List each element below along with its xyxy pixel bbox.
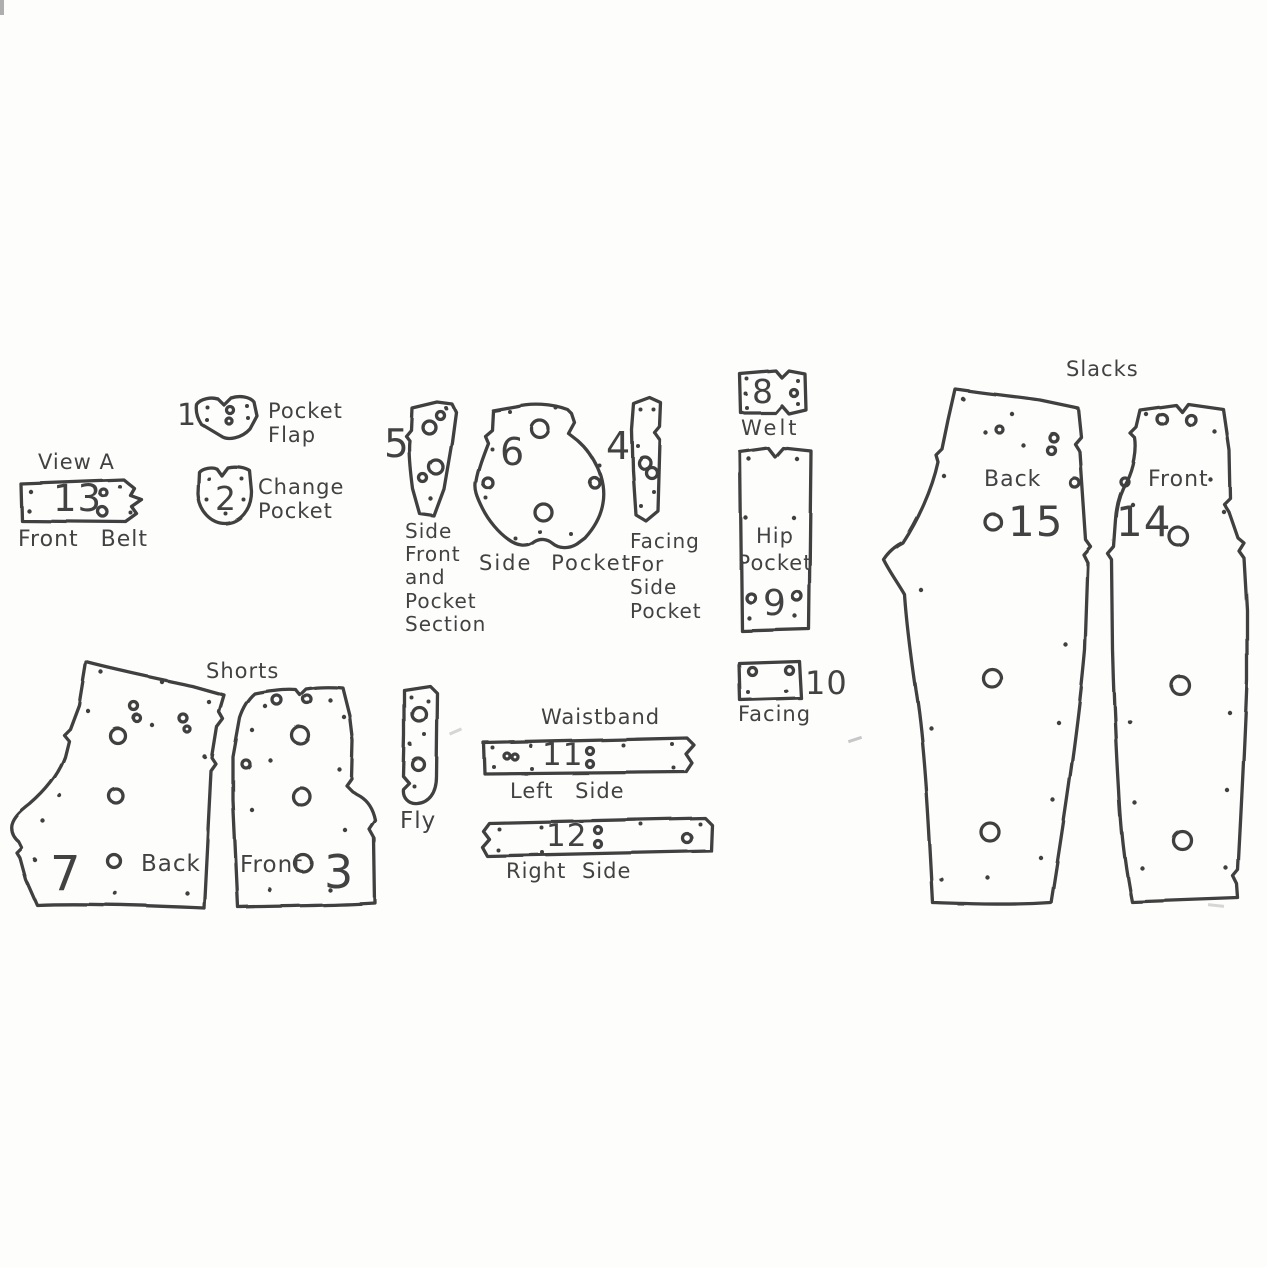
piece-number-6: 6	[500, 430, 525, 474]
view-a-label: View A	[38, 450, 115, 474]
piece-number-13: 13	[45, 477, 110, 520]
waistband-title: Waistband	[541, 705, 660, 729]
piece-number-3: 3	[324, 845, 354, 899]
welt-label: Welt	[741, 416, 800, 440]
scan-mark	[0, 0, 4, 15]
piece-side-pocket-shape	[475, 405, 603, 548]
piece-side-pocket-facing-shape	[632, 398, 661, 521]
shorts-title: Shorts	[206, 659, 279, 683]
sewing-pattern-sheet: View A 13 Front Belt 1 Pocket Flap 2 Cha…	[0, 0, 1267, 1267]
side-pocket-label: Side Pocket	[479, 551, 632, 575]
piece-fly-shape	[403, 686, 437, 803]
piece-side-front-shape	[406, 402, 456, 516]
piece-number-11: 11	[542, 737, 583, 773]
piece-number-10: 10	[805, 664, 848, 702]
shorts-front-label: Front	[240, 852, 303, 879]
piece-number-8: 8	[742, 372, 784, 411]
change-pocket-label: Change Pocket	[258, 475, 354, 524]
piece-number-5: 5	[384, 422, 410, 467]
waistband-left-label: Left Side	[510, 779, 625, 803]
piece-waistband-right-shape	[482, 818, 712, 856]
hip-pocket-label: Hip Pocket	[735, 523, 815, 578]
slacks-title: Slacks	[1066, 357, 1139, 381]
piece-number-14: 14	[1116, 497, 1171, 546]
facing-label: Facing	[738, 702, 811, 726]
piece-waistband-left-shape	[484, 738, 694, 774]
pattern-pieces-drawing	[0, 0, 1267, 1267]
side-pocket-facing-label: Facing For Side Pocket	[630, 530, 708, 623]
pocket-flap-label: Pocket Flap	[268, 399, 353, 448]
side-front-label: Side Front and Pocket Section	[405, 520, 485, 636]
shorts-back-label: Back	[141, 851, 201, 878]
piece-number-9: 9	[755, 583, 795, 624]
piece-number-12: 12	[546, 818, 587, 854]
slacks-front-label: Front	[1148, 467, 1209, 493]
waistband-right-label: Right Side	[506, 859, 631, 883]
piece-number-7: 7	[50, 846, 82, 902]
piece-number-2: 2	[215, 479, 237, 518]
slacks-back-label: Back	[984, 467, 1041, 493]
front-belt-label: Front Belt	[18, 527, 148, 553]
fly-label: Fly	[400, 808, 436, 835]
piece-pocket-flap-shape	[196, 397, 257, 439]
piece-facing-shape	[739, 661, 801, 700]
piece-number-4: 4	[606, 424, 631, 468]
piece-number-1: 1	[177, 398, 197, 433]
piece-number-15: 15	[1008, 497, 1063, 546]
